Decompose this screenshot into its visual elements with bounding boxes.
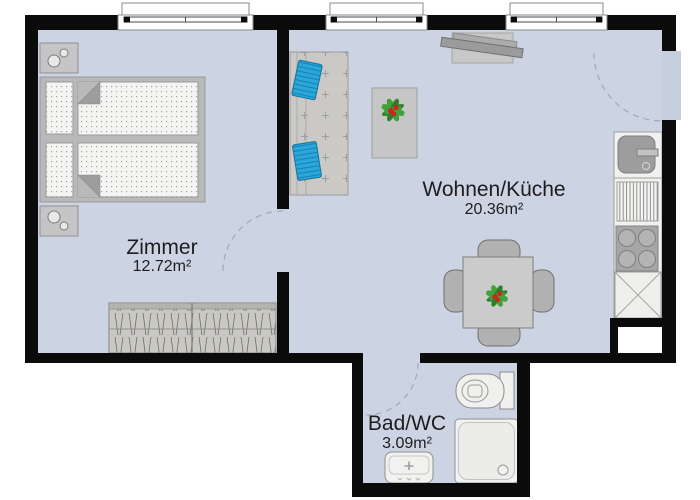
burner: [619, 230, 636, 247]
wall-bad-left: [352, 363, 363, 497]
label-zimmer: Zimmer: [126, 236, 197, 259]
kitchen-row: [614, 132, 662, 318]
burner: [639, 230, 656, 247]
washbasin: [385, 452, 433, 483]
wall-bad-bottom: [352, 483, 530, 497]
faucet-icon: [637, 149, 658, 156]
burner: [619, 251, 636, 268]
wall-left: [25, 15, 38, 363]
shower: [455, 419, 518, 483]
label-zimmer-area: 12.72m²: [133, 258, 192, 275]
window-sill: [510, 3, 603, 15]
tv-sideboard: [441, 31, 524, 63]
drain: [498, 465, 508, 475]
entrance-threshold: [662, 51, 681, 120]
floor-door-gap-bad: [363, 353, 420, 363]
dining-chair: [530, 270, 554, 312]
dishwasher: [617, 182, 658, 221]
floor-plan: Zimmer 12.72m² Wohnen/Küche 20.36m² Bad/…: [0, 0, 700, 500]
wall-bottom-left: [25, 353, 363, 363]
label-bad-wc-area: 3.09m²: [382, 435, 432, 452]
pillow: [46, 143, 73, 197]
nightstand-bottom: [40, 206, 78, 236]
label-wohnen-kueche: Wohnen/Küche: [422, 178, 565, 201]
toilet-bowl: [456, 374, 504, 408]
toilet: [456, 372, 514, 409]
wall-interior-upper: [277, 30, 289, 209]
nightstand-top: [40, 43, 78, 73]
wall-bad-right: [517, 363, 530, 497]
window-3: [506, 3, 607, 30]
window-sill: [122, 3, 249, 15]
window-1: [118, 3, 253, 30]
window-sill: [330, 3, 423, 15]
pillow: [46, 82, 73, 134]
shaft-niche: [618, 327, 662, 353]
burner: [639, 251, 656, 268]
sofa-pillow: [292, 141, 321, 180]
wall-right-upper: [662, 15, 676, 51]
plant-table: [372, 88, 417, 158]
floor-plan-canvas: Zimmer 12.72m² Wohnen/Küche 20.36m² Bad/…: [0, 0, 700, 500]
label-wohnen-kueche-area: 20.36m²: [465, 201, 524, 218]
sofa: [290, 52, 348, 195]
bed: [40, 77, 205, 202]
wall-interior-lower: [277, 272, 289, 353]
floor-door-gap-zimmer: [277, 209, 289, 272]
wardrobe: [109, 303, 276, 353]
label-bad-wc: Bad/WC: [368, 412, 446, 435]
window-2: [326, 3, 427, 30]
